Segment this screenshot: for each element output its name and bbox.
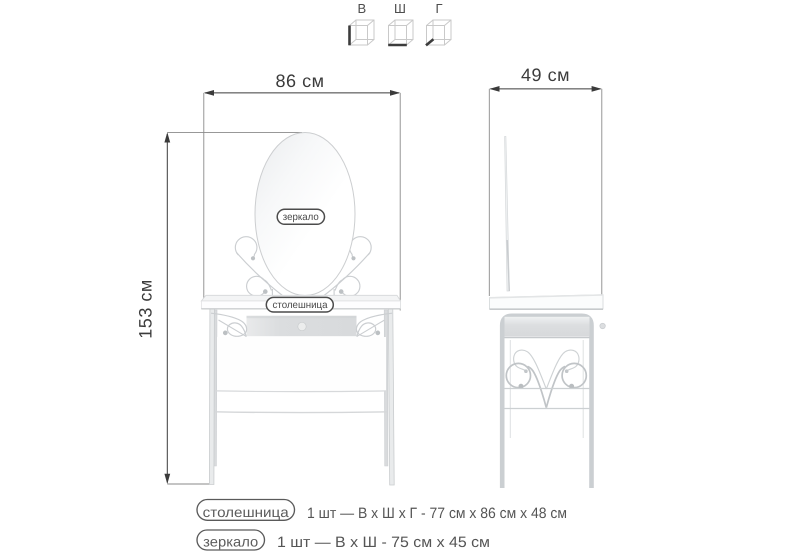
svg-text:1 шт — В х Ш - 75 см х 45 см: 1 шт — В х Ш - 75 см х 45 см bbox=[277, 534, 490, 551]
svg-text:зеркало: зеркало bbox=[203, 533, 258, 549]
svg-text:столешница: столешница bbox=[203, 504, 289, 520]
svg-text:1 шт — В х Ш х Г - 77 см х 86: 1 шт — В х Ш х Г - 77 см х 86 см х 48 см bbox=[307, 505, 567, 522]
svg-text:столешница: столешница bbox=[273, 300, 328, 311]
svg-text:49 см: 49 см bbox=[521, 65, 570, 85]
svg-text:Ш: Ш bbox=[394, 1, 406, 16]
svg-text:зеркало: зеркало bbox=[283, 212, 319, 223]
svg-text:В: В bbox=[357, 1, 366, 16]
svg-text:86 см: 86 см bbox=[276, 71, 325, 91]
svg-text:Г: Г bbox=[435, 1, 442, 16]
svg-text:153 см: 153 см bbox=[136, 279, 156, 338]
